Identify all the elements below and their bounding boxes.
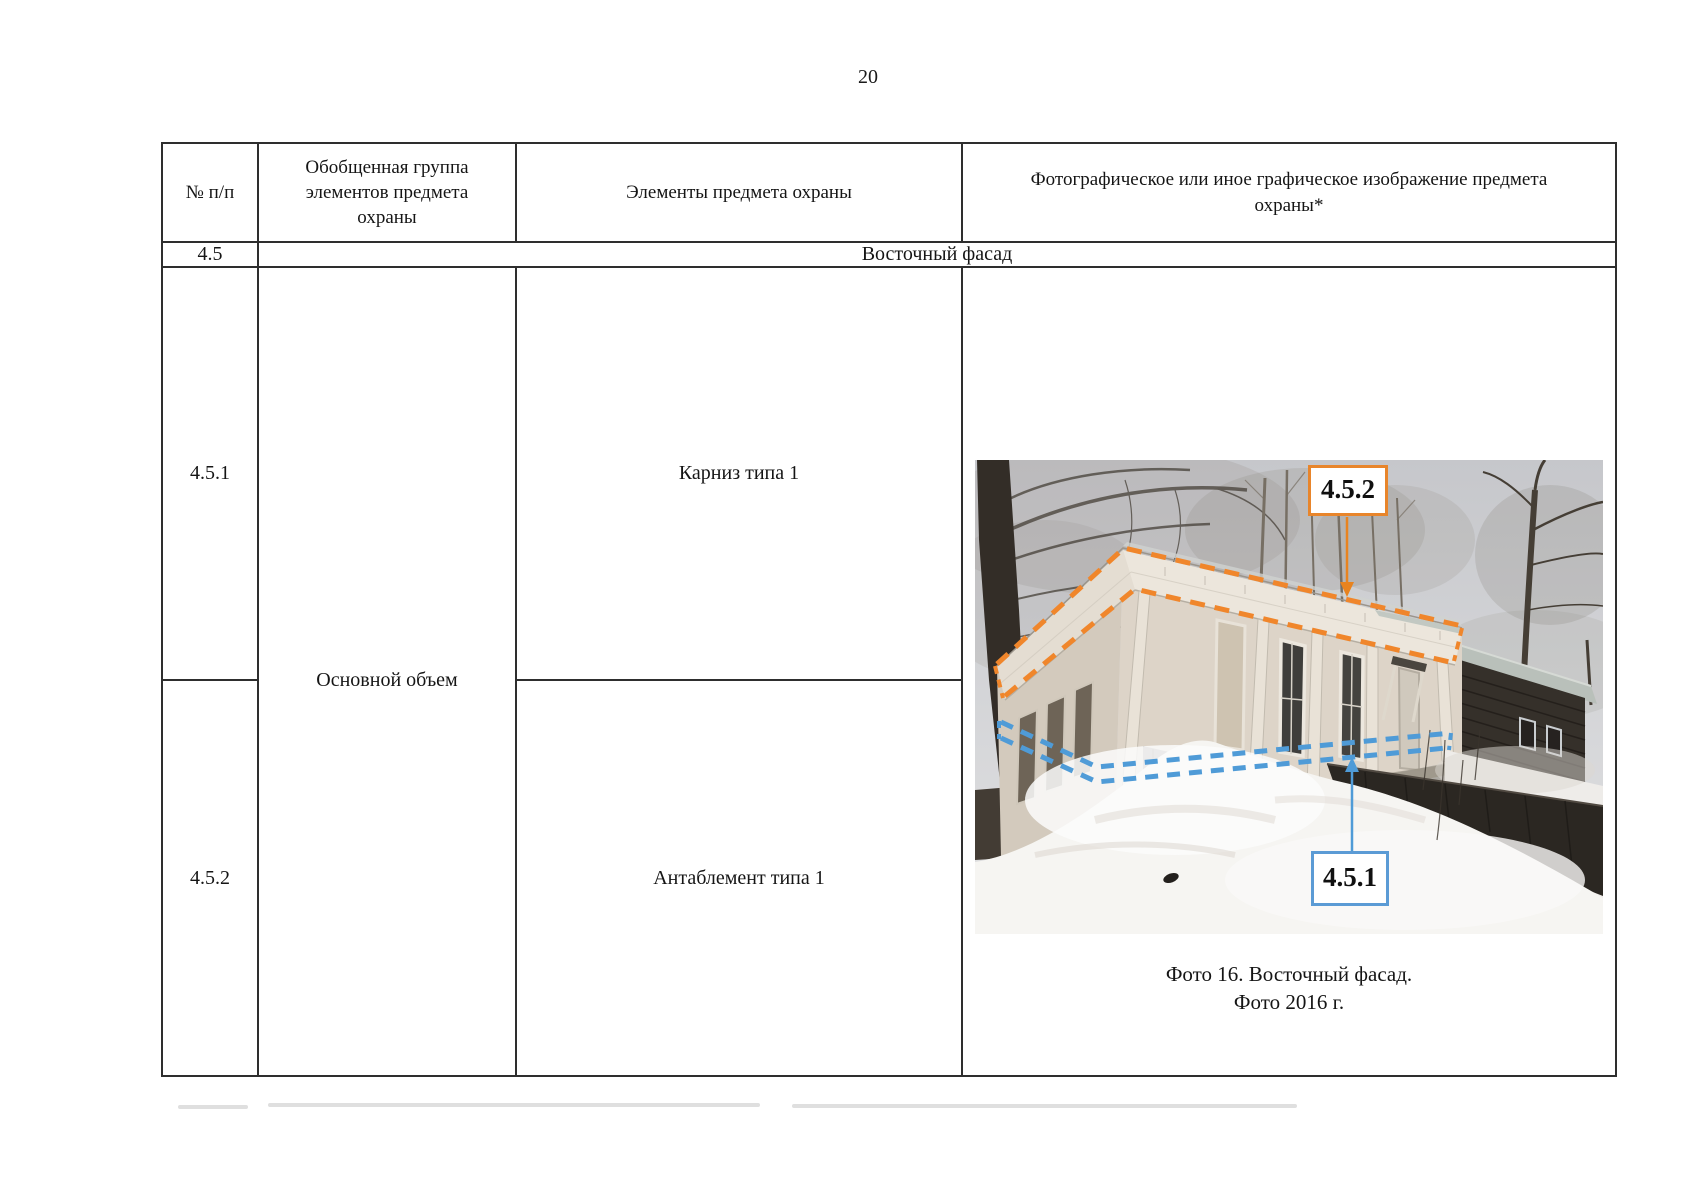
element-cell: Карниз типа 1 xyxy=(516,267,962,680)
annotation-label-452: 4.5.2 xyxy=(1308,465,1388,516)
row-number: 4.5.2 xyxy=(162,680,258,1076)
header-col-elements: Элементы предмета охраны xyxy=(516,143,962,242)
section-number: 4.5 xyxy=(162,242,258,267)
header-col-number: № п/п xyxy=(162,143,258,242)
photo-caption: Фото 16. Восточный фасад. Фото 2016 г. xyxy=(969,960,1609,1016)
header-col-photo: Фотографическое или иное графическое изо… xyxy=(962,143,1616,242)
scan-artifact xyxy=(178,1105,248,1109)
facade-photo-illustration xyxy=(975,460,1603,934)
photo-caption-line1: Фото 16. Восточный фасад. xyxy=(969,960,1609,988)
section-row: 4.5 Восточный фасад xyxy=(162,242,1616,267)
table-row: 4.5.1 Основной объем Карниз типа 1 xyxy=(162,267,1616,680)
facade-photo: 4.5.2 4.5.1 xyxy=(975,460,1603,934)
photo-cell: 4.5.2 4.5.1 Фото 16. Восточный фасад. Фо… xyxy=(962,267,1616,1076)
group-cell: Основной объем xyxy=(258,267,516,1076)
photo-caption-line2: Фото 2016 г. xyxy=(969,988,1609,1016)
element-cell: Антаблемент типа 1 xyxy=(516,680,962,1076)
annotation-label-451: 4.5.1 xyxy=(1311,851,1389,906)
scanned-document-page: 20 № п/п Обобщенная группа элементов пре… xyxy=(0,0,1697,1200)
section-title: Восточный фасад xyxy=(258,242,1616,267)
header-col-group: Обобщенная группа элементов предмета охр… xyxy=(258,143,516,242)
scan-artifact xyxy=(268,1103,760,1107)
protection-elements-table: № п/п Обобщенная группа элементов предме… xyxy=(161,142,1617,1077)
table-header-row: № п/п Обобщенная группа элементов предме… xyxy=(162,143,1616,242)
scan-artifact xyxy=(792,1104,1297,1108)
page-number: 20 xyxy=(808,66,928,89)
row-number: 4.5.1 xyxy=(162,267,258,680)
